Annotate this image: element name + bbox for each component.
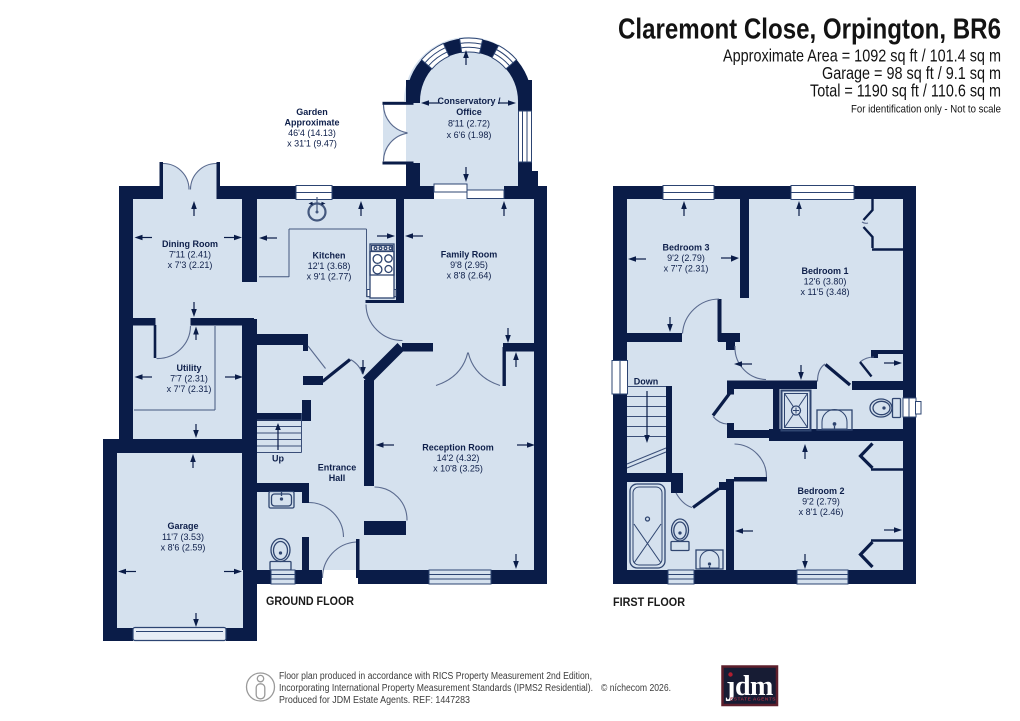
svg-text:x 9'1 (2.77): x 9'1 (2.77) bbox=[307, 272, 352, 282]
svg-text:Bedroom 2: Bedroom 2 bbox=[797, 486, 844, 496]
svg-text:Reception Room: Reception Room bbox=[422, 443, 494, 453]
svg-text:Claremont Close, Orpington, BR: Claremont Close, Orpington, BR6 bbox=[618, 14, 1001, 46]
svg-text:Kitchen: Kitchen bbox=[312, 251, 345, 261]
svg-text:9'2 (2.79): 9'2 (2.79) bbox=[667, 253, 705, 263]
svg-text:x 8'8 (2.64): x 8'8 (2.64) bbox=[447, 271, 492, 281]
svg-text:Garden: Garden bbox=[296, 107, 328, 117]
svg-text:x 11'5 (3.48): x 11'5 (3.48) bbox=[800, 287, 849, 297]
svg-text:12'6 (3.80): 12'6 (3.80) bbox=[804, 277, 847, 287]
svg-text:ESTATE AGENTS: ESTATE AGENTS bbox=[730, 697, 776, 703]
svg-text:Office: Office bbox=[456, 107, 482, 117]
svg-text:x 7'7 (2.31): x 7'7 (2.31) bbox=[664, 264, 709, 274]
svg-text:Conservatory /: Conservatory / bbox=[437, 96, 501, 106]
svg-text:x 7'3 (2.21): x 7'3 (2.21) bbox=[168, 260, 213, 270]
svg-text:x 10'8 (3.25): x 10'8 (3.25) bbox=[433, 464, 483, 474]
svg-text:Utility: Utility bbox=[176, 363, 201, 373]
svg-text:Approximate: Approximate bbox=[284, 118, 339, 128]
svg-text:Entrance: Entrance bbox=[318, 463, 357, 473]
svg-text:7'7 (2.31): 7'7 (2.31) bbox=[170, 374, 208, 384]
svg-text:Total = 1190 sq ft / 110.6 sq: Total = 1190 sq ft / 110.6 sq m bbox=[810, 81, 1001, 101]
svg-text:8'11 (2.72): 8'11 (2.72) bbox=[448, 119, 490, 129]
svg-text:9'8 (2.95): 9'8 (2.95) bbox=[450, 260, 488, 270]
svg-text:x 8'6 (2.59): x 8'6 (2.59) bbox=[161, 543, 206, 553]
svg-text:Incorporating International Pr: Incorporating International Property Mea… bbox=[279, 683, 593, 694]
svg-text:Bedroom 3: Bedroom 3 bbox=[662, 243, 709, 253]
svg-text:Dining Room: Dining Room bbox=[162, 239, 218, 249]
svg-text:For identification only - Not: For identification only - Not to scale bbox=[851, 104, 1001, 116]
svg-text:Hall: Hall bbox=[329, 473, 346, 483]
svg-text:Garage: Garage bbox=[167, 521, 198, 531]
svg-text:FIRST FLOOR: FIRST FLOOR bbox=[613, 595, 685, 609]
svg-text:Bedroom 1: Bedroom 1 bbox=[801, 266, 848, 276]
svg-text:12'1 (3.68): 12'1 (3.68) bbox=[308, 261, 351, 271]
svg-text:x 31'1 (9.47): x 31'1 (9.47) bbox=[287, 139, 337, 149]
svg-text:GROUND FLOOR: GROUND FLOOR bbox=[266, 594, 354, 608]
svg-text:46'4 (14.13): 46'4 (14.13) bbox=[288, 128, 336, 138]
svg-text:x 7'7 (2.31): x 7'7 (2.31) bbox=[167, 384, 212, 394]
svg-text:11'7 (3.53): 11'7 (3.53) bbox=[162, 532, 204, 542]
svg-text:Family Room: Family Room bbox=[441, 250, 498, 260]
svg-text:Produced for JDM Estate Agents: Produced for JDM Estate Agents. REF: 144… bbox=[279, 695, 470, 706]
svg-text:7'11 (2.41): 7'11 (2.41) bbox=[169, 250, 211, 260]
svg-text:9'2 (2.79): 9'2 (2.79) bbox=[802, 497, 840, 507]
svg-text:x 6'6 (1.98): x 6'6 (1.98) bbox=[447, 130, 492, 140]
svg-text:Down: Down bbox=[634, 377, 659, 387]
svg-text:© níchecom 2026.: © níchecom 2026. bbox=[601, 683, 671, 694]
svg-text:Up: Up bbox=[272, 454, 284, 464]
svg-text:Floor plan produced in accorda: Floor plan produced in accordance with R… bbox=[279, 671, 592, 682]
svg-text:14'2 (4.32): 14'2 (4.32) bbox=[437, 453, 480, 463]
svg-text:x 8'1 (2.46): x 8'1 (2.46) bbox=[799, 507, 844, 517]
